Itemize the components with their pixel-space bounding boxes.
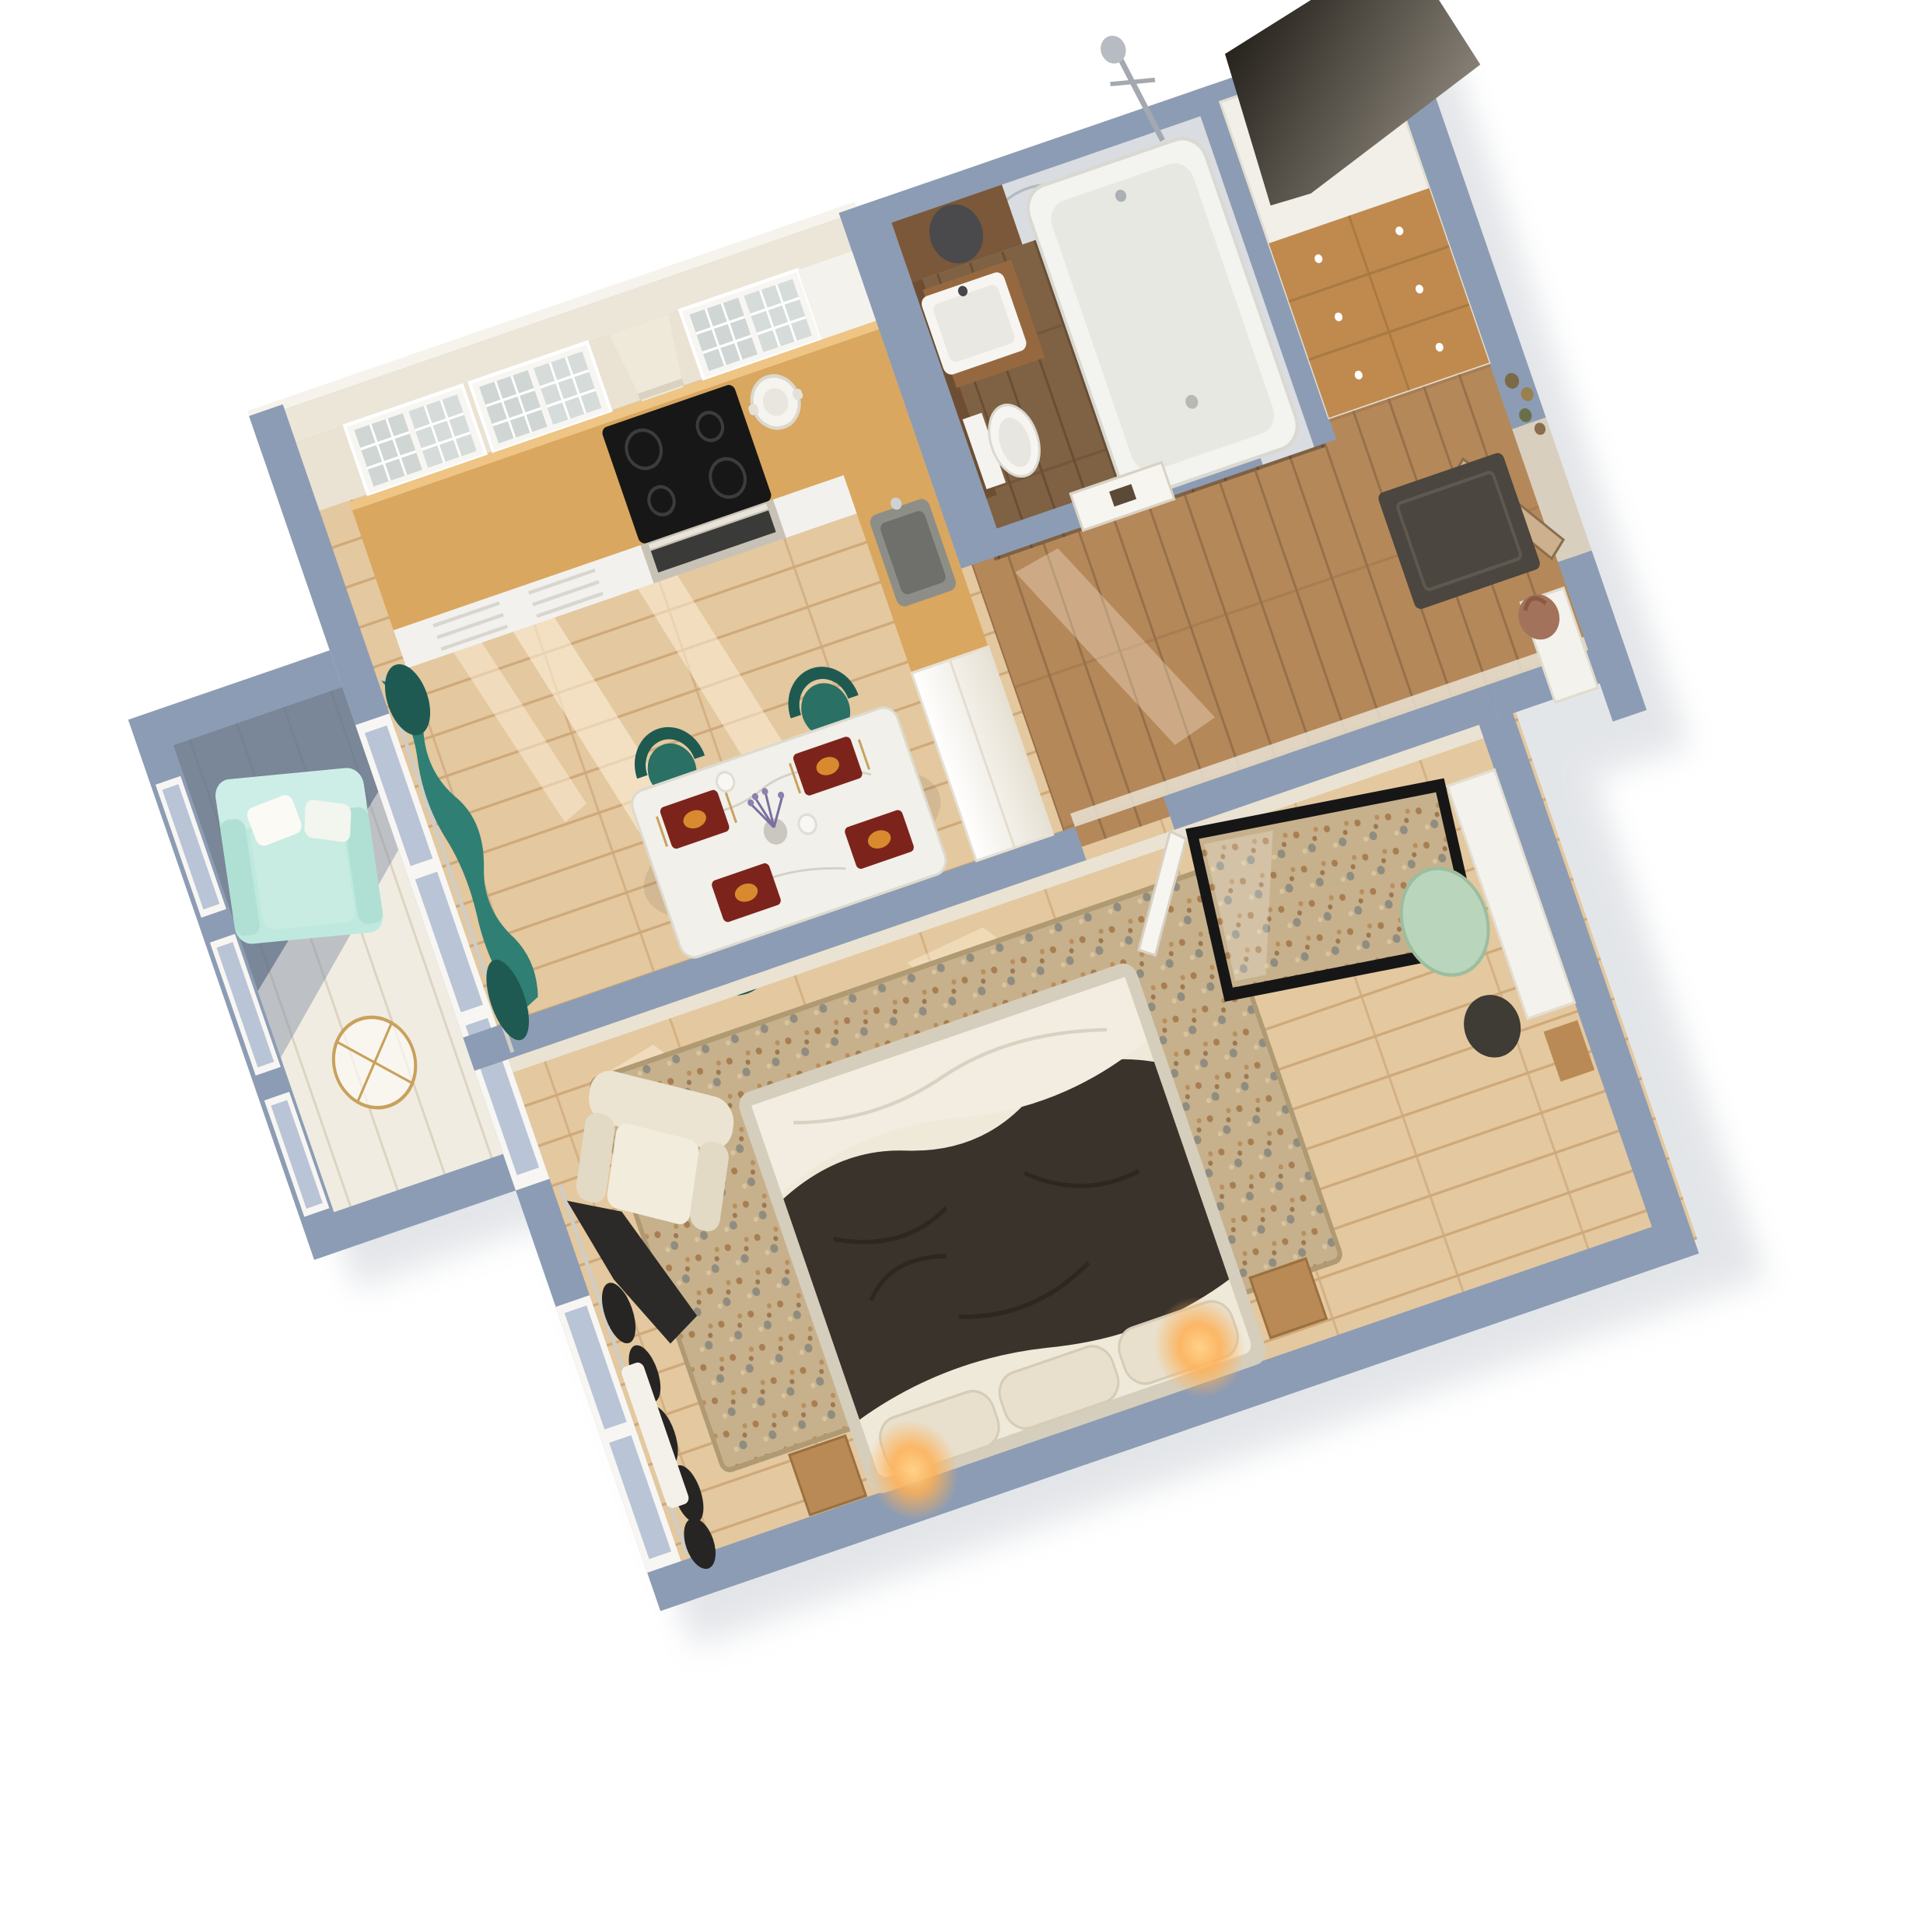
floor-plan-svg bbox=[0, 0, 1932, 1932]
apartment-group bbox=[22, 0, 1884, 1722]
mint-armchair bbox=[213, 767, 385, 946]
shower-bar bbox=[1111, 70, 1155, 94]
white-pillow bbox=[304, 799, 352, 843]
floor-plan-render bbox=[0, 0, 1932, 1932]
